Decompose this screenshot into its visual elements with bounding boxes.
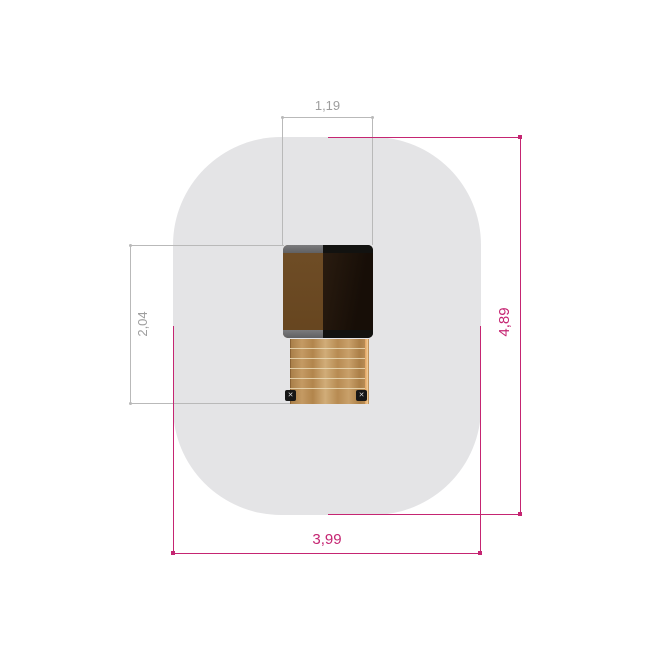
dim-endpoint-dot bbox=[129, 244, 132, 247]
tower-roof bbox=[283, 245, 373, 338]
ladder-rungs bbox=[290, 339, 368, 397]
dim-label-zone-width: 3,99 bbox=[173, 531, 481, 549]
dim-endpoint-dot bbox=[478, 551, 482, 555]
roof-trim-top-left bbox=[283, 245, 323, 253]
dim-endpoint-dot bbox=[371, 116, 374, 119]
mounting-bracket-left: ✕ bbox=[285, 390, 296, 401]
dim-endpoint-dot bbox=[281, 116, 284, 119]
mounting-bracket-right: ✕ bbox=[356, 390, 367, 401]
dim-endpoint-dot bbox=[518, 512, 522, 516]
dim-endpoint-dot bbox=[171, 551, 175, 555]
roof-right-panel bbox=[323, 245, 373, 338]
extension-line-zone-length-top bbox=[328, 137, 521, 138]
dim-label-zone-length: 4,89 bbox=[496, 307, 514, 336]
dim-label-equipment-depth: 2,04 bbox=[135, 311, 151, 336]
dim-line-zone-width bbox=[173, 553, 481, 554]
bracket-screw-icon: ✕ bbox=[359, 392, 365, 399]
roof-left-panel bbox=[283, 245, 323, 338]
dim-line-tower-width bbox=[282, 117, 373, 118]
dim-label-tower-width: 1,19 bbox=[282, 98, 373, 114]
plan-drawing-canvas: 1,19 2,04 4,89 3,99 ✕ ✕ bbox=[0, 0, 660, 660]
extension-line-tower-width-left bbox=[282, 117, 283, 245]
dim-line-equipment-depth bbox=[130, 245, 131, 404]
roof-trim-bottom-right bbox=[323, 330, 373, 338]
extension-line-zone-width-left bbox=[173, 326, 174, 553]
dim-endpoint-dot bbox=[518, 135, 522, 139]
bracket-screw-icon: ✕ bbox=[288, 392, 294, 399]
extension-line-zone-width-right bbox=[480, 326, 481, 553]
dim-endpoint-dot bbox=[129, 402, 132, 405]
extension-line-zone-length-bottom bbox=[328, 514, 521, 515]
roof-trim-top-right bbox=[323, 245, 373, 253]
roof-trim-bottom-left bbox=[283, 330, 323, 338]
dim-line-zone-length bbox=[520, 137, 521, 515]
extension-line-equipment-depth-top bbox=[130, 245, 284, 246]
extension-line-equipment-depth-bottom bbox=[130, 403, 293, 404]
